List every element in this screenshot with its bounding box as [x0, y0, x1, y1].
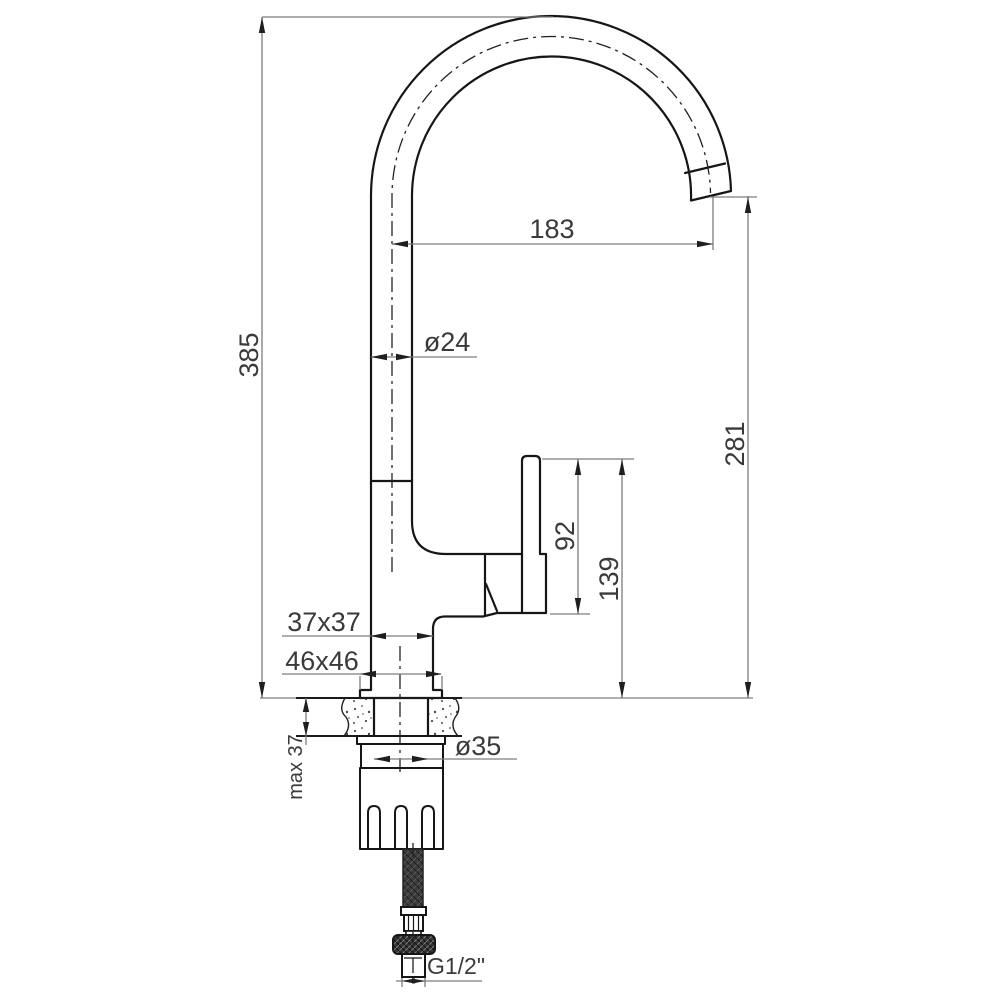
spout-centerline — [392, 37, 711, 573]
arrow-139-top — [619, 459, 625, 475]
label-connection-thread: G1/2" — [427, 953, 485, 979]
label-spout-tube-diameter: ø24 — [424, 327, 471, 357]
mounting-collar — [361, 744, 443, 768]
arrow-92-top — [575, 459, 581, 475]
label-body-cross-section: 37x37 — [287, 607, 361, 637]
braided-hose — [403, 849, 423, 908]
label-max-deck-thickness: max 37 — [285, 734, 307, 800]
dimension-lines — [262, 17, 757, 987]
connection-nut — [393, 935, 435, 954]
mounting-hardware — [357, 736, 445, 849]
arrow-281-bottom — [745, 682, 751, 698]
arrow-385-bottom — [259, 682, 265, 698]
label-lever-section-height: 92 — [550, 521, 580, 551]
arrow-max37-top — [303, 698, 309, 712]
arrow-183-right — [697, 241, 713, 247]
arrow-281-top — [745, 197, 751, 213]
label-spout-reach: 183 — [529, 214, 574, 244]
arrow-max37-bottom — [303, 722, 309, 736]
arrow-385-top — [259, 17, 265, 33]
technical-drawing-page: 183 385 ø24 281 92 139 37x37 46x46 max 3… — [0, 0, 1000, 1000]
label-mounting-hole-diameter: ø35 — [455, 731, 502, 761]
label-overall-height: 385 — [234, 332, 264, 377]
hose-crimp-collar — [401, 907, 426, 915]
arrow-46-left — [360, 671, 376, 677]
countertop-section — [260, 698, 753, 736]
mounting-washer — [357, 736, 445, 744]
arrow-thread-right — [412, 978, 425, 983]
mounting-nut — [360, 768, 443, 849]
label-base-cross-section: 46x46 — [285, 646, 359, 676]
label-outlet-height: 281 — [720, 421, 750, 466]
mounting-shank-edges — [374, 698, 428, 736]
faucet-technical-drawing: 183 385 ø24 281 92 139 37x37 46x46 max 3… — [0, 0, 1000, 1000]
dim-thread-line — [396, 978, 482, 987]
dimension-arrows — [259, 17, 751, 984]
arrow-139-bottom — [619, 682, 625, 698]
label-body-section-height: 139 — [594, 556, 624, 601]
arrow-92-bottom — [575, 598, 581, 614]
